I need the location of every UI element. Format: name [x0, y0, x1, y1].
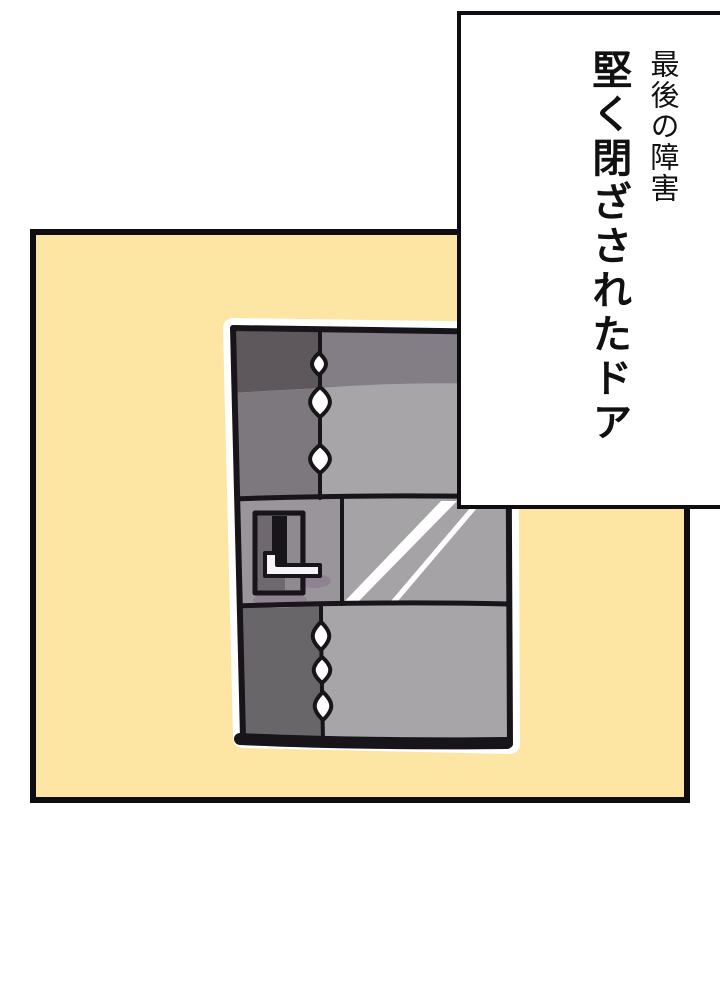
narration-line-small: 最後の障害	[645, 49, 680, 489]
narration-line-bold: 堅く閉ざされたドア	[585, 49, 631, 489]
narration-box: 最後の障害 堅く閉ざされたドア	[457, 11, 720, 509]
